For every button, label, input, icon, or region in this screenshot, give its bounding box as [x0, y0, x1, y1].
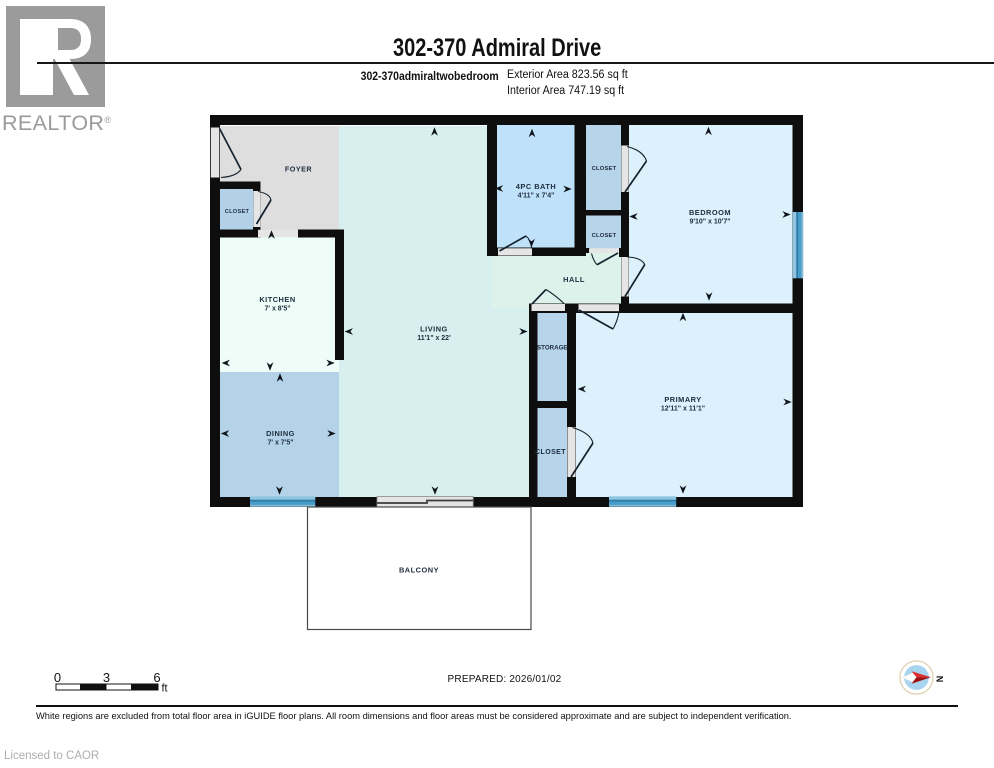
svg-text:BALCONY: BALCONY: [399, 566, 439, 575]
svg-text:11'1" x 22': 11'1" x 22': [417, 335, 451, 342]
svg-text:CLOSET: CLOSET: [225, 209, 250, 215]
svg-text:ft: ft: [162, 683, 168, 695]
svg-text:LIVING: LIVING: [420, 325, 448, 334]
svg-text:BEDROOM: BEDROOM: [689, 208, 731, 217]
svg-text:0: 0: [54, 670, 61, 685]
svg-text:STORAGE: STORAGE: [537, 345, 567, 352]
svg-text:4PC BATH: 4PC BATH: [516, 182, 556, 191]
svg-text:CLOSET: CLOSET: [592, 233, 617, 239]
svg-text:DINING: DINING: [266, 429, 295, 438]
svg-text:N: N: [935, 676, 945, 683]
svg-text:FOYER: FOYER: [285, 165, 313, 174]
svg-text:4'11" x 7'4": 4'11" x 7'4": [518, 192, 555, 199]
svg-text:9'10" x 10'7": 9'10" x 10'7": [689, 218, 730, 225]
svg-text:KITCHEN: KITCHEN: [259, 295, 295, 304]
svg-text:3: 3: [103, 670, 110, 685]
svg-text:CLOSET: CLOSET: [535, 449, 566, 456]
svg-text:7' x 8'5": 7' x 8'5": [264, 305, 290, 312]
svg-text:6: 6: [153, 670, 160, 685]
svg-text:PRIMARY: PRIMARY: [664, 395, 701, 404]
svg-text:12'11" x 11'1": 12'11" x 11'1": [661, 405, 705, 412]
svg-text:7' x 7'5": 7' x 7'5": [267, 439, 293, 446]
svg-text:CLOSET: CLOSET: [592, 166, 617, 172]
svg-text:PREPARED: 2026/01/02: PREPARED: 2026/01/02: [448, 674, 562, 685]
svg-text:HALL: HALL: [563, 275, 585, 284]
